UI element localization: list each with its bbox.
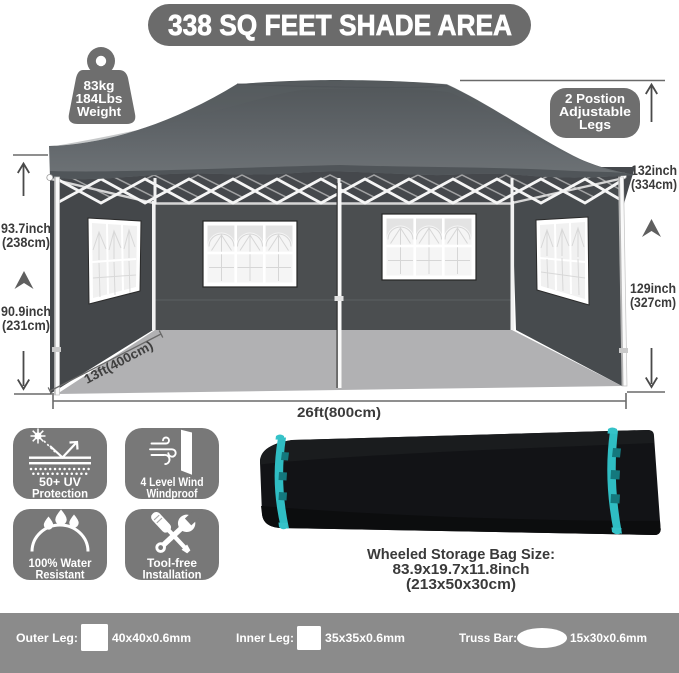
svg-text:Windproof: Windproof — [147, 487, 199, 501]
svg-text:(213x50x30cm): (213x50x30cm) — [406, 577, 516, 593]
svg-text:Resistant: Resistant — [36, 568, 85, 582]
svg-text:129inch: 129inch — [630, 281, 676, 296]
svg-text:(334cm): (334cm) — [631, 177, 677, 192]
svg-text:83.9x19.7x11.8inch: 83.9x19.7x11.8inch — [393, 562, 530, 578]
svg-text:338 SQ FEET SHADE AREA: 338 SQ FEET SHADE AREA — [168, 10, 512, 42]
svg-text:26ft(800cm): 26ft(800cm) — [297, 404, 381, 420]
svg-text:93.7inch: 93.7inch — [1, 221, 51, 236]
svg-text:90.9inch: 90.9inch — [1, 304, 51, 319]
svg-text:Wheeled Storage Bag Size:: Wheeled Storage Bag Size: — [367, 547, 555, 563]
svg-text:Truss Bar:: Truss Bar: — [459, 631, 517, 645]
svg-text:Installation: Installation — [143, 568, 202, 582]
svg-text:35x35x0.6mm: 35x35x0.6mm — [325, 631, 405, 645]
svg-text:132inch: 132inch — [631, 163, 677, 178]
svg-text:40x40x0.6mm: 40x40x0.6mm — [112, 631, 191, 645]
svg-text:15x30x0.6mm: 15x30x0.6mm — [570, 631, 647, 645]
svg-text:(231cm): (231cm) — [2, 318, 50, 333]
svg-text:Legs: Legs — [579, 117, 611, 132]
svg-text:Outer Leg:: Outer Leg: — [16, 631, 78, 645]
svg-text:(327cm): (327cm) — [630, 295, 676, 310]
svg-text:Protection: Protection — [32, 487, 88, 501]
svg-text:(238cm): (238cm) — [2, 235, 50, 250]
svg-text:Inner Leg:: Inner Leg: — [236, 631, 294, 645]
svg-text:Weight: Weight — [77, 104, 122, 119]
